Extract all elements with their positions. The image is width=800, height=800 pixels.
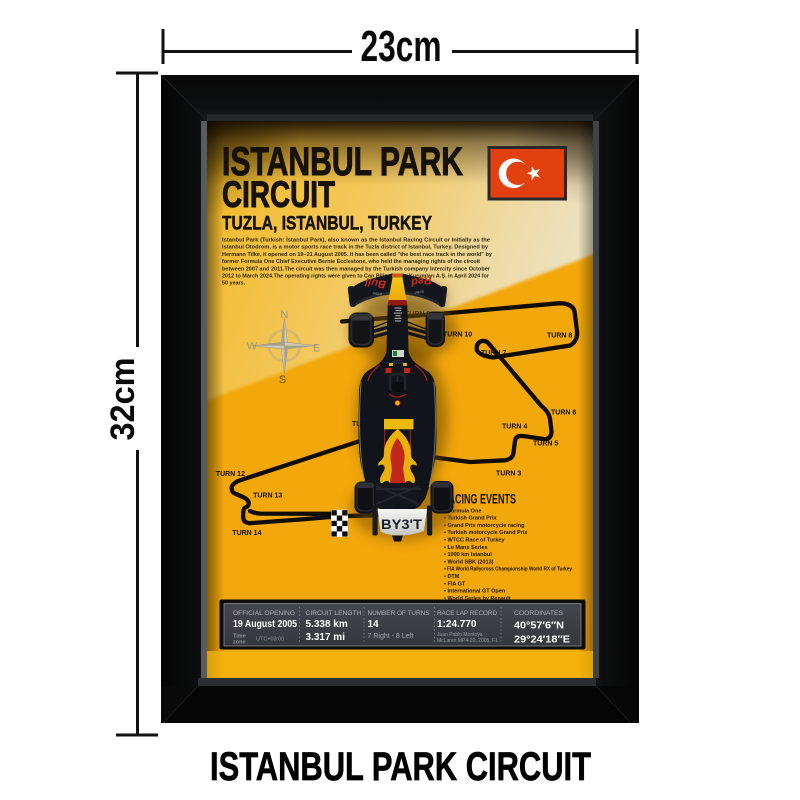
svg-text:W: W [247, 341, 258, 353]
svg-text:2012 to March 2024.The operati: 2012 to March 2024.The operating rights … [222, 274, 490, 280]
svg-text:CIRCUIT LENGTH: CIRCUIT LENGTH [306, 610, 362, 617]
svg-text:TURN 3: TURN 3 [496, 471, 521, 478]
svg-text:TUZLA, ISTANBUL, TURKEY: TUZLA, ISTANBUL, TURKEY [222, 213, 432, 235]
svg-text:• 1000 km Istanbul: • 1000 km Istanbul [444, 552, 492, 558]
svg-text:TURN 8: TURN 8 [547, 333, 572, 340]
svg-text:• International GT Open: • International GT Open [444, 589, 506, 595]
svg-text:BY3'T: BY3'T [381, 517, 423, 532]
svg-text:UTC+03:00: UTC+03:00 [256, 637, 284, 643]
svg-text:• FIA GT: • FIA GT [444, 581, 466, 587]
svg-text:7 Right - 8 Left: 7 Right - 8 Left [368, 633, 414, 640]
svg-text:NUMBER OF TURNS: NUMBER OF TURNS [368, 610, 430, 617]
svg-text:5.338 km: 5.338 km [306, 619, 348, 630]
svg-text:TURN 4: TURN 4 [502, 424, 527, 431]
svg-text:19 August 2005: 19 August 2005 [233, 619, 297, 630]
svg-text:• FIA World Rallycross Champio: • FIA World Rallycross Championship Worl… [444, 567, 573, 573]
svg-text:TURN 7: TURN 7 [481, 350, 506, 357]
svg-text:COORDINATES: COORDINATES [514, 610, 563, 617]
svg-text:40°57′6″N: 40°57′6″N [514, 621, 564, 632]
svg-text:between 2007 and 2011.The circ: between 2007 and 2011.The circuit was th… [222, 266, 491, 272]
svg-text:RACE LAP RECORD: RACE LAP RECORD [437, 610, 497, 617]
svg-text:TURN 5: TURN 5 [533, 441, 558, 448]
svg-text:TURN 10: TURN 10 [443, 332, 472, 339]
svg-text:former Formula One Chief Execu: former Formula One Chief Executive Berni… [222, 259, 480, 265]
svg-text:50 years.: 50 years. [222, 281, 246, 287]
svg-text:• Grand Prix motorcycle racing: • Grand Prix motorcycle racing [444, 523, 524, 529]
svg-text:TURN 12: TURN 12 [216, 471, 245, 478]
svg-text:zone: zone [233, 640, 246, 646]
svg-text:32cm: 32cm [104, 358, 142, 441]
svg-text:N: N [280, 309, 288, 321]
svg-text:23cm: 23cm [361, 22, 442, 71]
svg-text:Hermann Tilke, it opened on 19: Hermann Tilke, it opened on 19–21 August… [222, 252, 492, 258]
svg-text:CIRCUIT: CIRCUIT [222, 173, 335, 215]
svg-text:Istanbul Otodrom, is a motor s: Istanbul Otodrom, is a motor sports race… [222, 245, 488, 251]
svg-text:OFFICIAL OPENING: OFFICIAL OPENING [233, 610, 295, 617]
svg-text:• World SBK (2013): • World SBK (2013) [444, 559, 494, 565]
svg-text:• DTM: • DTM [444, 574, 460, 580]
svg-text:• WTCC Race of Turkey: • WTCC Race of Turkey [444, 538, 505, 544]
svg-text:S: S [279, 374, 286, 386]
svg-text:TURN 13: TURN 13 [253, 492, 282, 499]
svg-text:• Turkish motorcycle Grand Pri: • Turkish motorcycle Grand Prix [444, 530, 528, 536]
svg-text:29°24′18″E: 29°24′18″E [514, 635, 570, 646]
svg-text:TURN 14: TURN 14 [232, 530, 261, 537]
svg-text:ISTANBUL PARK CIRCUIT: ISTANBUL PARK CIRCUIT [210, 745, 591, 789]
svg-text:McLaren MP4-20, 2005, F1: McLaren MP4-20, 2005, F1 [437, 638, 498, 644]
svg-text:3.317 mi: 3.317 mi [306, 632, 346, 643]
svg-text:TURN 6: TURN 6 [551, 410, 576, 417]
svg-text:14: 14 [368, 619, 380, 630]
svg-text:E: E [313, 343, 320, 355]
svg-text:• Le Mans Series: • Le Mans Series [444, 545, 488, 551]
svg-text:1:24.770: 1:24.770 [437, 619, 477, 630]
svg-text:Istanbul Park (Turkish: İstanb: Istanbul Park (Turkish: İstanbul Park), … [222, 237, 490, 244]
